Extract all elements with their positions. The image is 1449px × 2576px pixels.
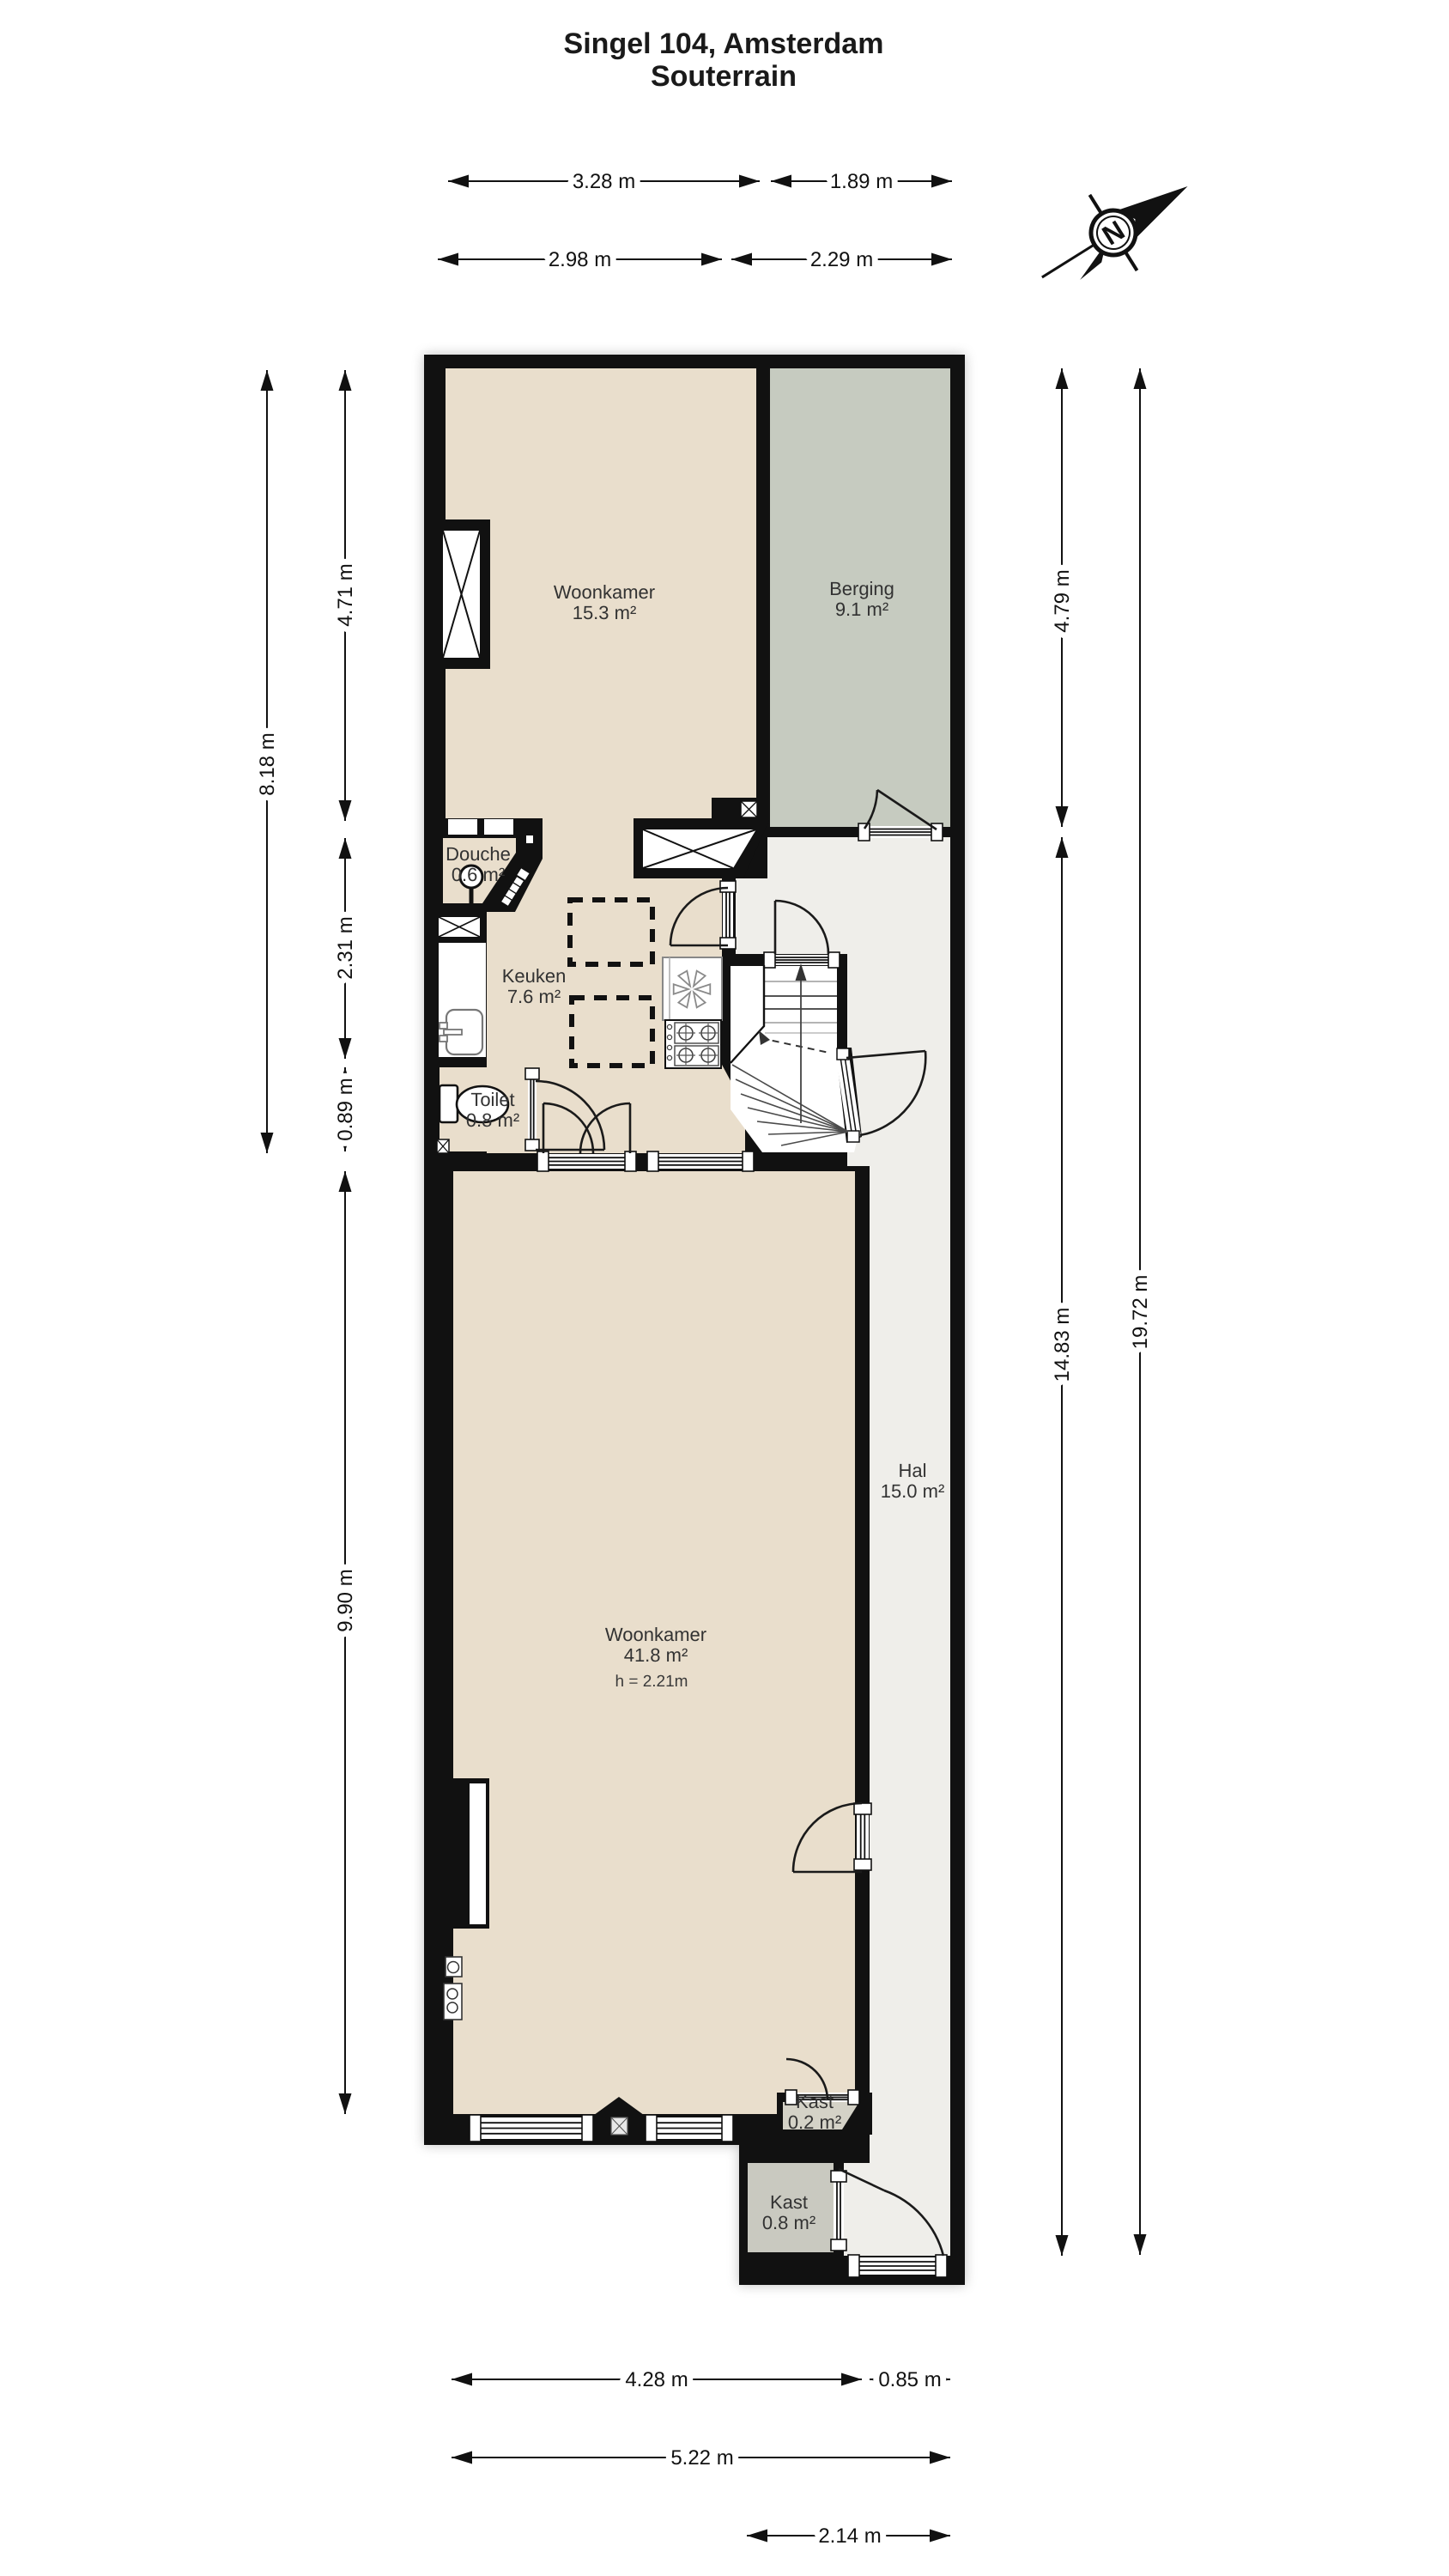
svg-text:Toilet: Toilet bbox=[470, 1089, 514, 1110]
svg-text:15.3 m²: 15.3 m² bbox=[573, 602, 637, 623]
svg-text:2.14 m: 2.14 m bbox=[818, 2524, 881, 2548]
svg-text:2.98 m: 2.98 m bbox=[549, 248, 611, 271]
svg-text:Woonkamer: Woonkamer bbox=[554, 581, 655, 603]
svg-text:0.6 m²: 0.6 m² bbox=[452, 864, 505, 885]
svg-text:Kast: Kast bbox=[770, 2191, 808, 2213]
svg-text:19.72 m: 19.72 m bbox=[1129, 1275, 1152, 1350]
svg-text:15.0 m²: 15.0 m² bbox=[881, 1480, 945, 1502]
svg-text:Berging: Berging bbox=[829, 578, 894, 599]
svg-text:0.8 m²: 0.8 m² bbox=[762, 2212, 815, 2233]
svg-text:h = 2.21m: h = 2.21m bbox=[615, 1673, 688, 1691]
svg-text:4.79 m: 4.79 m bbox=[1051, 569, 1074, 632]
svg-text:Woonkamer: Woonkamer bbox=[605, 1624, 706, 1645]
svg-text:Hal: Hal bbox=[898, 1460, 926, 1481]
svg-text:0.8 m²: 0.8 m² bbox=[466, 1109, 519, 1131]
svg-text:4.71 m: 4.71 m bbox=[334, 563, 357, 626]
svg-text:3.28 m: 3.28 m bbox=[573, 170, 635, 193]
svg-text:0.2 m²: 0.2 m² bbox=[788, 2111, 841, 2133]
svg-text:4.28 m: 4.28 m bbox=[625, 2368, 688, 2391]
svg-text:Keuken: Keuken bbox=[502, 965, 567, 987]
svg-text:5.22 m: 5.22 m bbox=[670, 2446, 733, 2470]
svg-text:1.89 m: 1.89 m bbox=[830, 170, 893, 193]
svg-text:0.89 m: 0.89 m bbox=[334, 1078, 357, 1140]
svg-text:Douche: Douche bbox=[446, 843, 511, 865]
svg-text:2.29 m: 2.29 m bbox=[810, 248, 873, 271]
svg-text:8.18 m: 8.18 m bbox=[256, 732, 279, 795]
svg-text:41.8 m²: 41.8 m² bbox=[624, 1644, 688, 1666]
svg-text:Souterrain: Souterrain bbox=[651, 60, 797, 93]
svg-text:2.31 m: 2.31 m bbox=[334, 916, 357, 979]
svg-text:Singel 104, Amsterdam: Singel 104, Amsterdam bbox=[564, 27, 884, 60]
svg-text:14.83 m: 14.83 m bbox=[1051, 1308, 1074, 1382]
svg-text:9.90 m: 9.90 m bbox=[334, 1569, 357, 1631]
svg-text:0.85 m: 0.85 m bbox=[878, 2368, 941, 2391]
svg-text:7.6 m²: 7.6 m² bbox=[507, 986, 561, 1007]
svg-text:9.1 m²: 9.1 m² bbox=[835, 598, 888, 620]
svg-text:Kast: Kast bbox=[796, 2091, 834, 2112]
